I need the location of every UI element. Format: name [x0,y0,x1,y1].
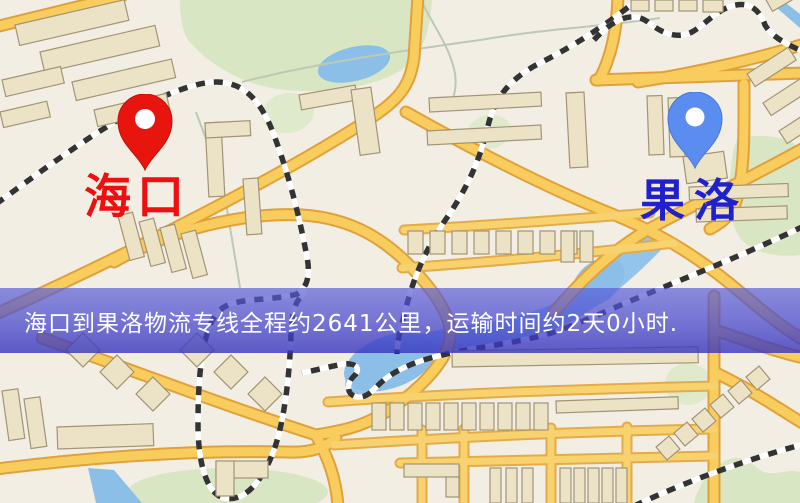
origin-pin-icon[interactable] [117,94,173,172]
route-info-text: 海口到果洛物流专线全程约2641公里，运输时间约2天0小时. [24,304,678,338]
map-screenshot: 海口 果洛 海口到果洛物流专线全程约2641公里，运输时间约2天0小时. [0,0,800,503]
map-canvas[interactable] [0,0,800,503]
destination-pin-icon[interactable] [667,92,723,170]
destination-label: 果洛 [640,178,748,223]
route-info-banner: 海口到果洛物流专线全程约2641公里，运输时间约2天0小时. [0,288,800,353]
origin-label: 海口 [84,174,190,221]
